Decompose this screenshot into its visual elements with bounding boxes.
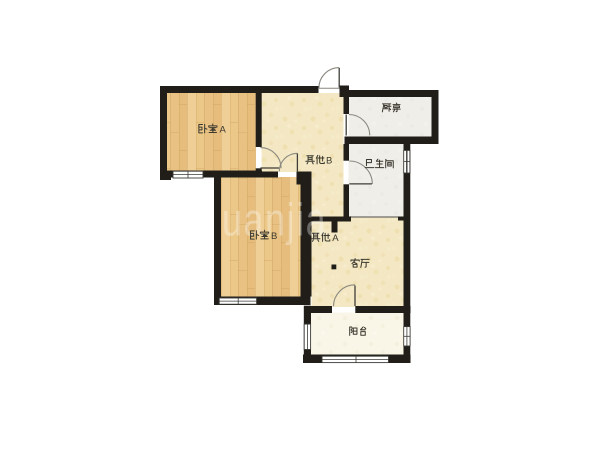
svg-text:A: A [220, 125, 227, 136]
svg-text:B: B [326, 156, 332, 167]
svg-text:B: B [271, 231, 277, 242]
svg-text:A: A [332, 233, 339, 244]
